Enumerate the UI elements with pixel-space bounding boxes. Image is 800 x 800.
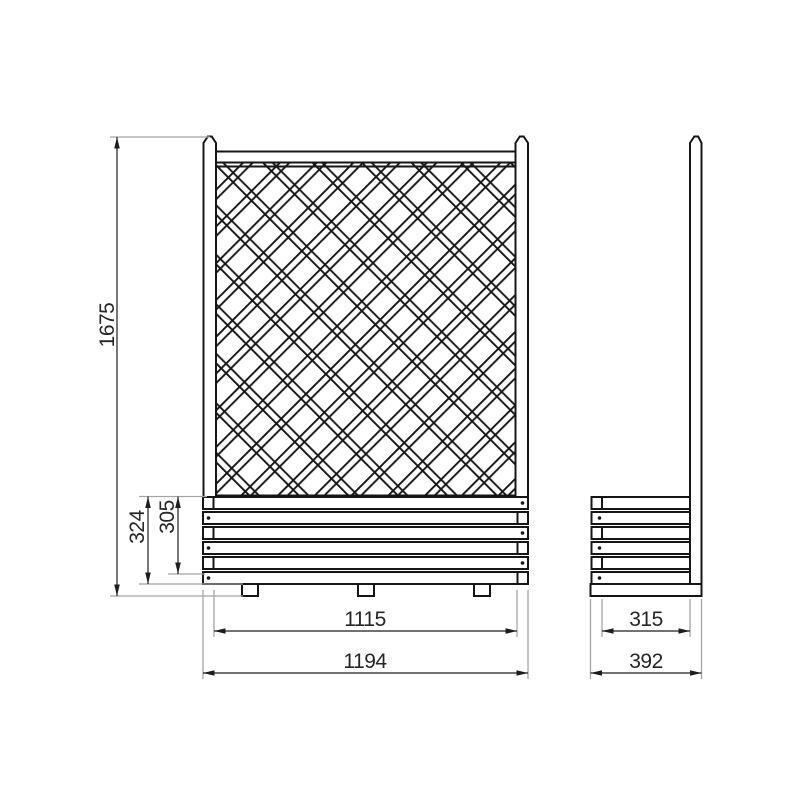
- screw-dot: [598, 516, 602, 520]
- dim-label-inner-depth: 315: [629, 608, 663, 631]
- planter-board: [214, 527, 529, 539]
- planter-board: [602, 527, 690, 539]
- front-right-post: [516, 137, 529, 499]
- dim-label-total-height: 1675: [96, 303, 119, 348]
- planter-end-cap: [203, 557, 214, 569]
- dim-inner-width: 1115: [214, 590, 517, 637]
- foot: [474, 584, 490, 596]
- dim-label-planter-outer-height: 324: [126, 509, 149, 543]
- planter-end-cap: [518, 512, 529, 524]
- planter-board: [214, 557, 529, 569]
- dim-inner-depth: 315: [602, 599, 690, 637]
- screw-dot: [521, 501, 525, 505]
- planter-end-cap: [592, 527, 603, 539]
- planter-board: [203, 542, 518, 554]
- front-view: [203, 137, 528, 597]
- dim-label-overall-width: 1194: [343, 650, 387, 673]
- planter-end-cap: [203, 497, 214, 509]
- planter-board: [203, 572, 518, 584]
- planter-board: [602, 557, 690, 569]
- planter-board: [602, 497, 690, 509]
- foot: [242, 584, 258, 596]
- front-left-post: [204, 137, 217, 499]
- planter-end-cap: [592, 557, 603, 569]
- side-view: [591, 137, 702, 597]
- side-planter-box: [591, 497, 702, 596]
- front-lattice-panel: [216, 163, 516, 496]
- screw-dot: [598, 576, 602, 580]
- screw-dot: [207, 516, 211, 520]
- screw-dot: [521, 531, 525, 535]
- front-feet: [242, 584, 490, 596]
- dim-overall-width: 1194: [203, 590, 528, 679]
- dim-label-planter-board-height: 305: [156, 500, 179, 534]
- side-post: [690, 137, 702, 585]
- front-top-rail: [216, 152, 516, 163]
- dim-label-inner-width: 1115: [344, 608, 386, 631]
- screw-dot: [598, 546, 602, 550]
- planter-board: [214, 497, 529, 509]
- screw-dot: [521, 561, 525, 565]
- foot: [358, 584, 374, 596]
- side-base-plate: [591, 584, 702, 596]
- planter-end-cap: [592, 497, 603, 509]
- drawing-canvas: 1675 324 305 1115 1194: [0, 0, 800, 800]
- planter-board: [592, 572, 691, 584]
- screw-dot: [207, 576, 211, 580]
- dim-planter-board-height: 305: [156, 497, 205, 575]
- planter-end-cap: [203, 527, 214, 539]
- screw-dot: [207, 546, 211, 550]
- planter-end-cap: [518, 572, 529, 584]
- front-planter-box: [203, 497, 528, 584]
- planter-board: [592, 542, 691, 554]
- planter-board: [203, 512, 518, 524]
- planter-board: [592, 512, 691, 524]
- planter-end-cap: [518, 542, 529, 554]
- dim-label-overall-depth: 392: [629, 650, 663, 673]
